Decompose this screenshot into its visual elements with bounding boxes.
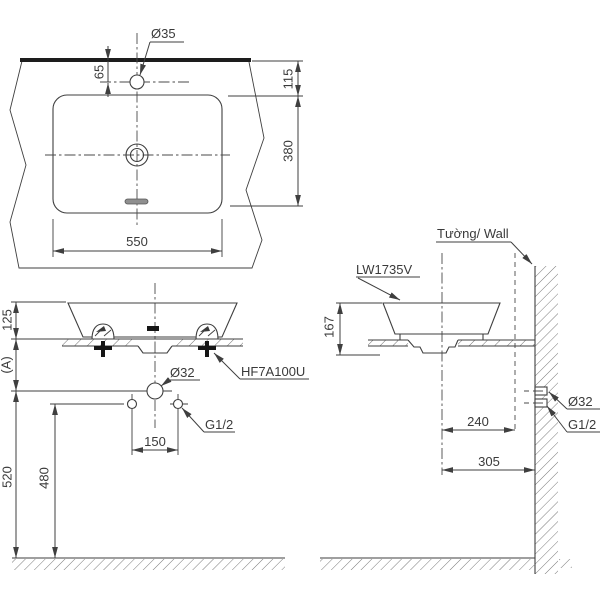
faucet-diameter-text: Ø35 <box>151 26 176 41</box>
dim-167: 167 <box>321 303 382 355</box>
dim-115-380: 115 380 <box>228 61 303 206</box>
basin-side <box>383 303 500 340</box>
faucet-diameter-label: Ø35 <box>140 26 184 75</box>
drain-diameter-text-front: Ø32 <box>170 365 195 380</box>
side-view: LW1735V Tường/ Wall Ø32 G1/2 167 <box>320 226 600 574</box>
drain-diameter-label-front: Ø32 <box>161 365 200 386</box>
wall <box>535 266 558 574</box>
overflow-slot-plan <box>125 199 148 204</box>
dim-65-text: 65 <box>91 65 106 79</box>
dim-380-text: 380 <box>280 140 295 162</box>
dim-480-text: 480 <box>36 467 51 489</box>
model-text: LW1735V <box>356 262 412 277</box>
dim-240: 240 <box>442 414 515 430</box>
technical-drawing: Ø35 65 115 380 550 <box>0 0 600 600</box>
front-view: Ø32 HF7A100U G1/2 150 125 (A) <box>0 283 309 570</box>
counter-side <box>368 340 535 353</box>
basin-outline-plan <box>53 95 222 213</box>
model-label: LW1735V <box>356 262 420 300</box>
dim-240-text: 240 <box>467 414 489 429</box>
dims-left-stack: 125 (A) 520 <box>0 302 66 558</box>
dim-305: 305 <box>442 454 535 470</box>
plan-view: Ø35 65 115 380 550 <box>10 26 303 268</box>
supply-hole-right <box>174 400 183 409</box>
overflow-slot-front <box>147 326 159 331</box>
wall-text: Tường/ Wall <box>437 226 509 241</box>
dim-550-text: 550 <box>126 234 148 249</box>
drain-diameter-text-side: Ø32 <box>568 394 593 409</box>
wall-label: Tường/ Wall <box>436 226 532 264</box>
dim-150-text: 150 <box>144 434 166 449</box>
dim-480: 480 <box>36 404 55 558</box>
fixture-text: HF7A100U <box>241 364 305 379</box>
drain-trap-side <box>408 340 458 353</box>
dim-115-text: 115 <box>280 69 295 90</box>
supply-hole-left <box>128 400 137 409</box>
fixture-label: HF7A100U <box>214 353 309 379</box>
floor-front <box>12 558 285 570</box>
dim-305-text: 305 <box>478 454 500 469</box>
dim-167-text: 167 <box>321 316 336 338</box>
supply-label-front: G1/2 <box>182 408 235 432</box>
supply-text-side: G1/2 <box>568 417 596 432</box>
dim-550: 550 <box>53 219 222 257</box>
dim-125-text: 125 <box>0 309 14 331</box>
faucet-hole <box>130 75 144 89</box>
dim-a-text: (A) <box>0 356 13 373</box>
supply-text-front: G1/2 <box>205 417 233 432</box>
drain-hole-front <box>147 383 163 399</box>
drawing-canvas: Ø35 65 115 380 550 <box>0 0 600 600</box>
dim-65: 65 <box>91 46 108 97</box>
dim-520-text: 520 <box>0 466 14 488</box>
dim-150: 150 <box>132 434 178 450</box>
floor-side <box>320 558 572 570</box>
